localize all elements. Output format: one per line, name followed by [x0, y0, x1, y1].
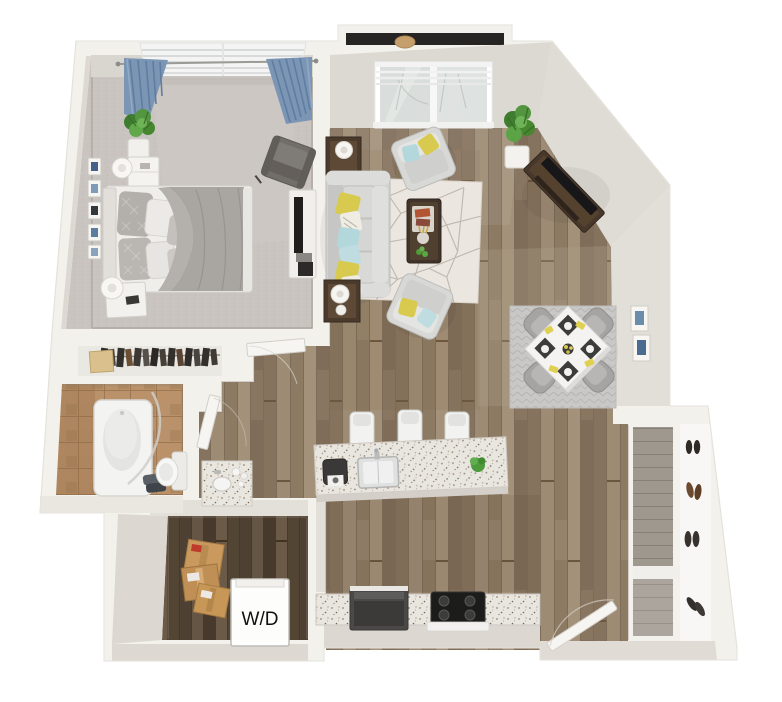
svg-text:W/D: W/D	[242, 609, 279, 630]
